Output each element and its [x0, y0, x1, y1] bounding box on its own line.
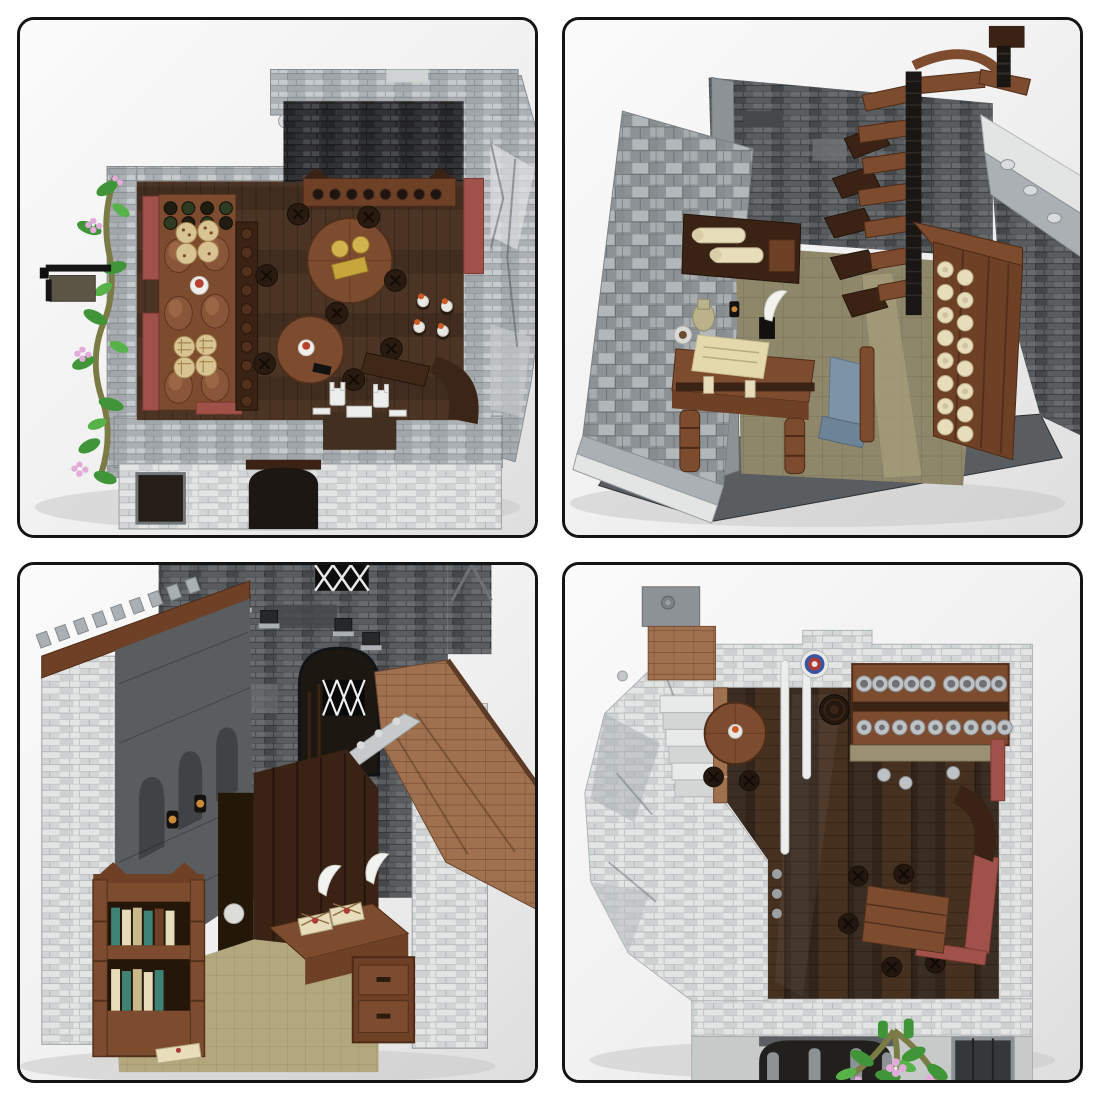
nougat-roof-block: [648, 626, 715, 679]
stair-column: [906, 72, 922, 316]
product-image-grid: [0, 0, 1100, 1100]
goblet-row: [857, 720, 1012, 735]
bookshelf: [93, 862, 204, 1056]
red-bench-left-bottom: [143, 313, 159, 410]
bar-counter: [850, 745, 1001, 761]
red-bench-left-top: [143, 196, 159, 279]
drawer-cabinet: [353, 957, 414, 1042]
wall-lamp: [729, 301, 739, 317]
cellar-window: [137, 474, 185, 524]
gray-cap-piece: [642, 587, 699, 627]
round-table-with-candle: [705, 703, 766, 764]
red-bench-bottom: [196, 402, 242, 414]
serving-ledge: [236, 222, 258, 410]
white-jar: [224, 904, 244, 924]
red-bench-panel: [464, 178, 484, 273]
back-wall-dark: [283, 101, 463, 182]
dark-window: [953, 1038, 1012, 1080]
front-facade: [119, 460, 501, 529]
round-table-small: [277, 316, 344, 383]
scroll-shelf: [682, 214, 801, 283]
photo-scriptorium-spiral-staircase: [562, 17, 1083, 538]
entrance-door: [249, 468, 318, 529]
stein-row: [856, 676, 1007, 692]
photo-study-library-cutaway: [17, 562, 538, 1083]
photo-dining-room-top-view: [17, 17, 538, 538]
dartboard: [801, 650, 829, 678]
lattice-window: [315, 565, 368, 591]
round-table-large: [307, 218, 392, 303]
plank-table: [862, 886, 949, 953]
right-turret: [448, 565, 492, 654]
shadow-recess: [218, 793, 254, 953]
barrel: [820, 695, 850, 725]
cream-cake: [190, 277, 208, 295]
bar-shelf-unit: [852, 664, 1012, 745]
floor-studs: [772, 869, 782, 919]
photo-bar-room-top-view: [562, 562, 1083, 1083]
newel-cap: [989, 26, 1025, 48]
